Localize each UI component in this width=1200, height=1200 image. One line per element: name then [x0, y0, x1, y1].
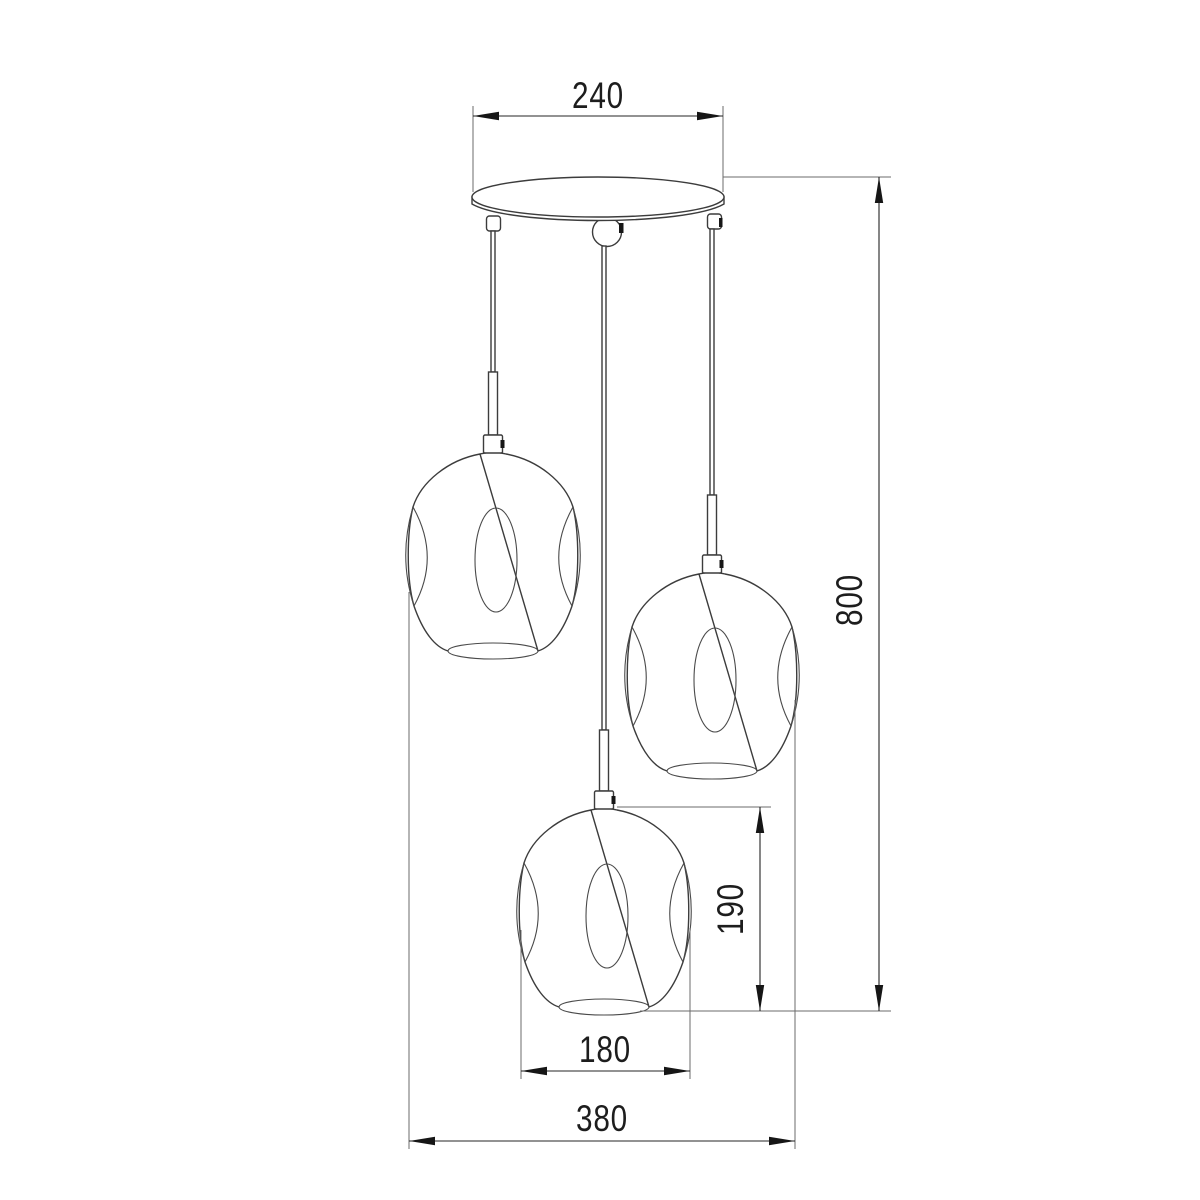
arrowhead-down: [875, 985, 883, 1011]
arrowhead-left: [521, 1067, 547, 1075]
glass-shade-bottom: [517, 791, 692, 1015]
swivel-ball: [593, 218, 622, 247]
arrowhead-left: [409, 1137, 435, 1145]
suspension-cord-center: [602, 246, 606, 730]
cord-cap-right-nub: [719, 218, 723, 227]
dimension-label-800: 800: [829, 574, 870, 626]
canopy-top: [472, 177, 724, 217]
arrowhead-down: [756, 985, 764, 1011]
dimension-shade-diameter: 180: [521, 928, 690, 1079]
glass-shade-left: [406, 435, 581, 659]
pendant-left: [406, 231, 581, 659]
dimension-label-240: 240: [572, 75, 624, 116]
pendant-bottom: [517, 246, 692, 1015]
arrowhead-right: [697, 112, 723, 120]
dimension-shade-height: 190: [617, 807, 771, 1011]
dimension-label-380: 380: [576, 1098, 628, 1139]
ceiling-canopy: [472, 177, 724, 221]
arrowhead-right: [664, 1067, 690, 1075]
glass-shade-right: [625, 555, 800, 779]
dimension-overall-height: 800: [640, 177, 891, 1011]
dimension-canopy-diameter: 240: [473, 75, 723, 192]
swivel-ball-nub: [619, 223, 624, 233]
suspension-cord-left: [491, 231, 495, 372]
arrowhead-up: [875, 177, 883, 203]
cord-sleeve-right: [708, 495, 717, 555]
technical-drawing-page: 240 800 190 180 380: [0, 0, 1200, 1200]
dimension-label-180: 180: [579, 1029, 631, 1070]
cord-cap-left: [487, 216, 501, 231]
arrowhead-up: [756, 807, 764, 833]
dimension-label-190: 190: [710, 883, 751, 935]
arrowhead-right: [769, 1137, 795, 1145]
arrowhead-left: [473, 112, 499, 120]
pendant-lamp-drawing: 240 800 190 180 380: [0, 0, 1200, 1200]
pendant-right: [625, 229, 800, 779]
cord-sleeve-left: [489, 372, 498, 435]
cord-sleeve-center: [600, 730, 609, 791]
suspension-cord-right: [710, 229, 714, 495]
